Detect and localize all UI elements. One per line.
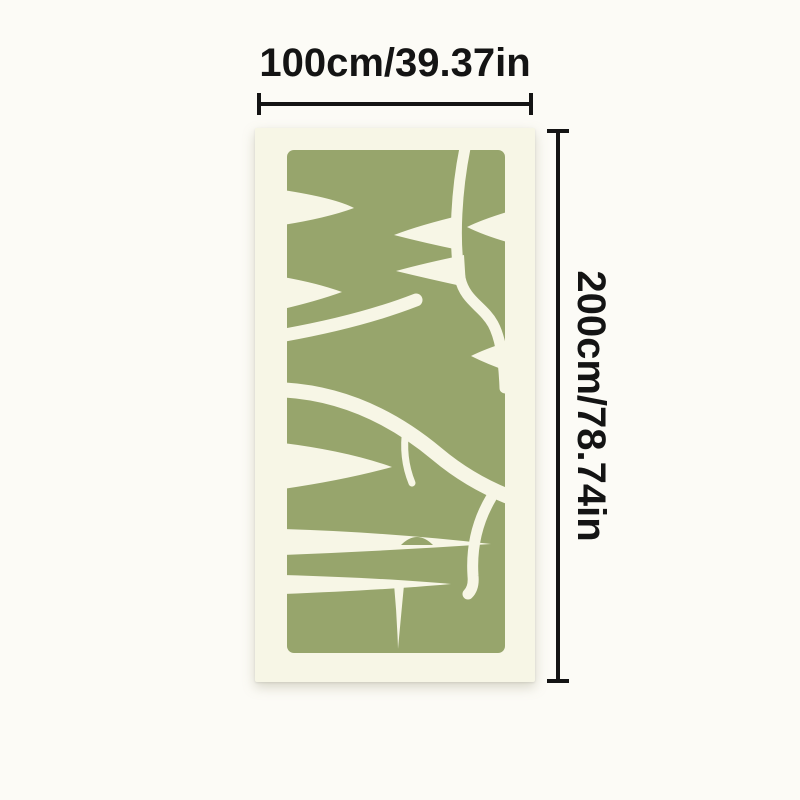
height-dimension-label: 200cm/78.74in: [569, 246, 613, 566]
measure-endcap-bottom: [547, 679, 569, 683]
width-dimension-label: 100cm/39.37in: [195, 41, 595, 85]
measure-rule-horizontal: [257, 102, 533, 106]
width-measure-line-icon: [257, 93, 533, 115]
dimension-diagram: 100cm/39.37in 200cm/78.74in: [0, 0, 800, 800]
abstract-pattern: [255, 128, 535, 682]
rug-image: [255, 128, 535, 682]
measure-endcap-right: [529, 93, 533, 115]
measure-rule-vertical: [556, 129, 560, 683]
height-measure-line-icon: [547, 129, 569, 683]
